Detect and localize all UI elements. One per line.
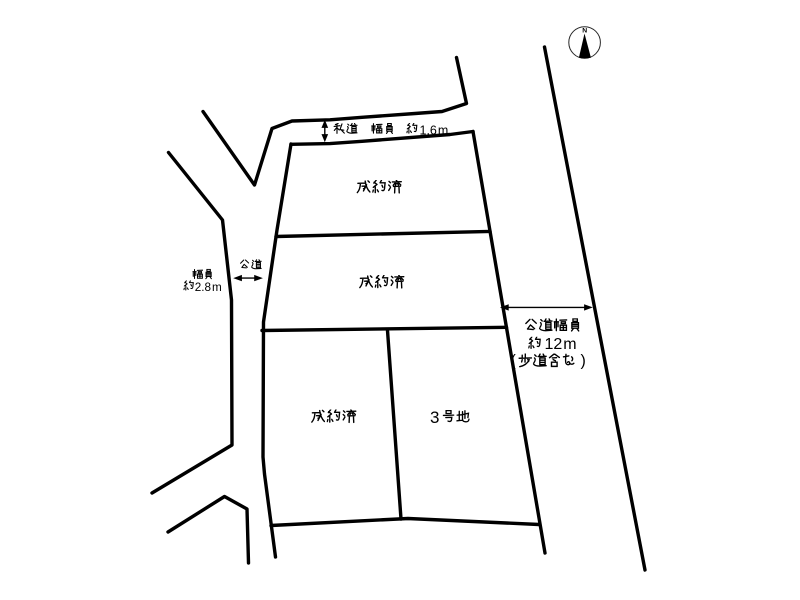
svg-text:1.6m: 1.6m (420, 123, 449, 137)
svg-text:(: ( (511, 353, 517, 370)
svg-text:N: N (582, 27, 587, 34)
svg-text:2.8m: 2.8m (195, 281, 222, 294)
svg-text:): ) (581, 353, 586, 370)
svg-text:3: 3 (430, 408, 439, 427)
svg-text:12m: 12m (545, 336, 577, 353)
